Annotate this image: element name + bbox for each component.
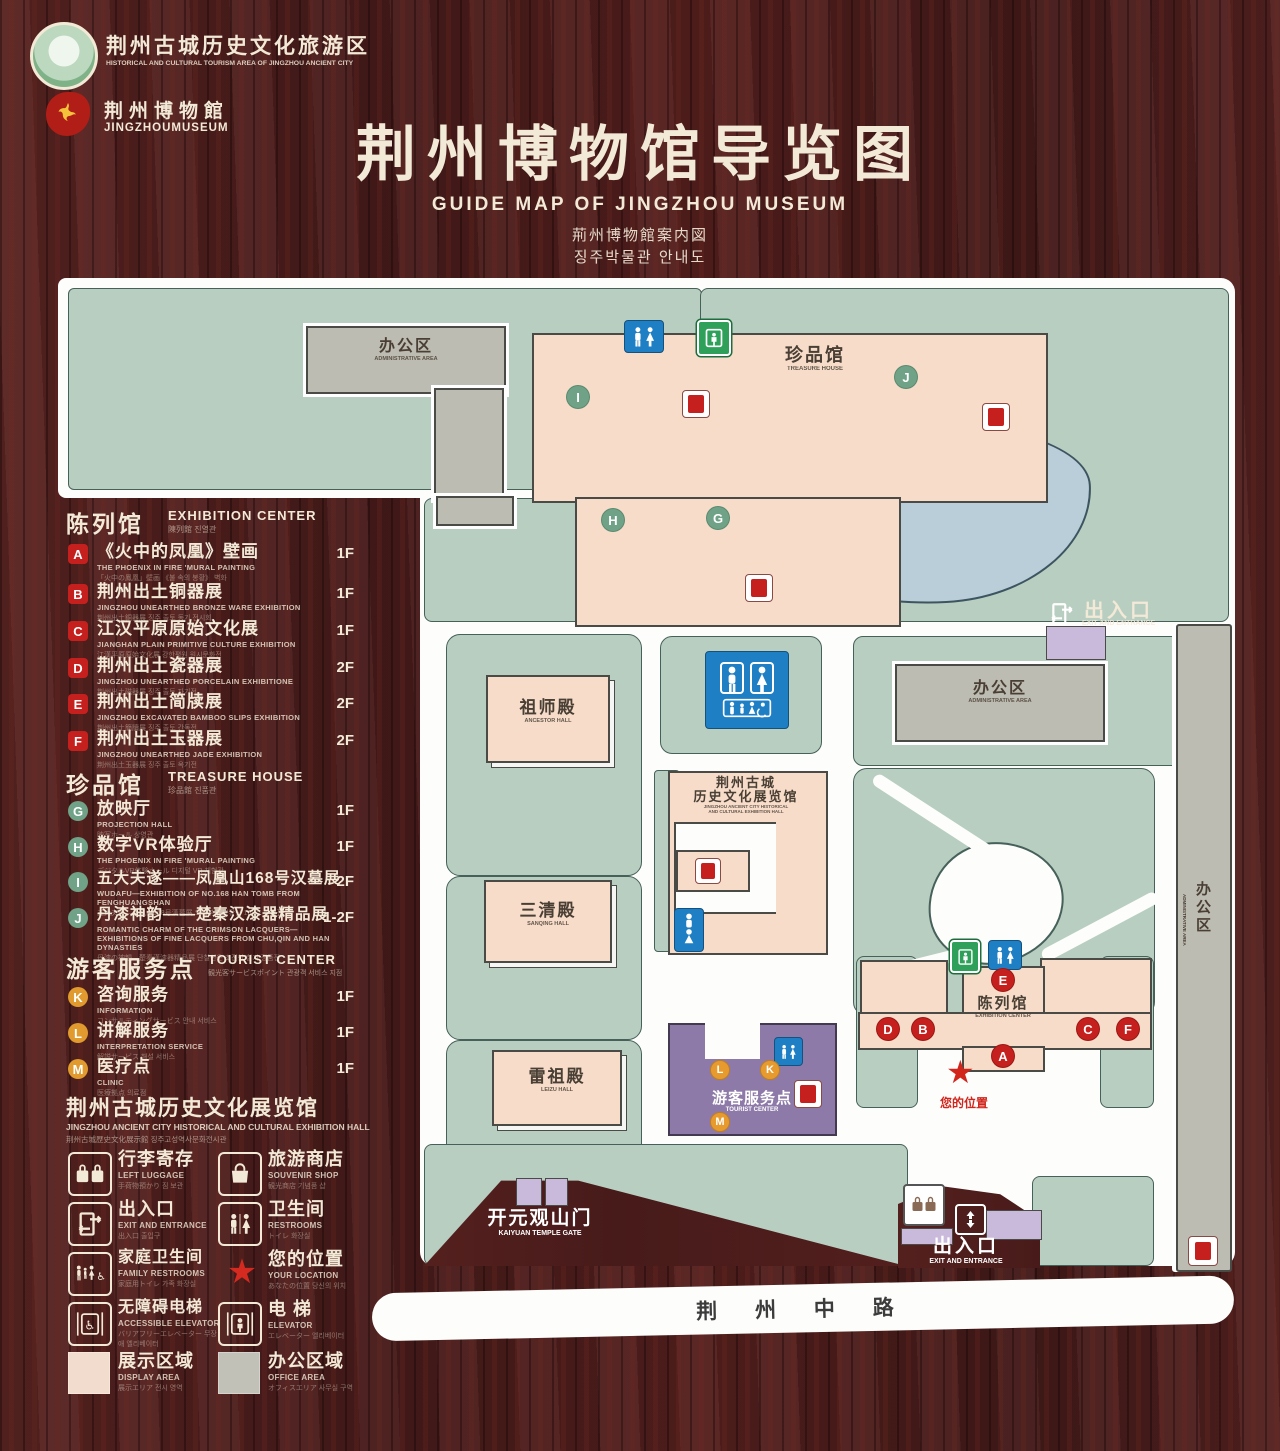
map-marker: K: [761, 1061, 779, 1079]
facility-entry: 电 梯 ELEVATOR エレベーター 엘리베이터: [268, 1300, 363, 1341]
item-floor: 2F: [336, 873, 354, 890]
history-hall-label-en2: AND CULTURAL EXHIBITION HALL: [670, 810, 822, 815]
treasure-house-label-en: TREASURE HOUSE: [760, 366, 870, 373]
ancestor-hall-label-en: ANCESTOR HALL: [488, 718, 608, 724]
hall-note-en: JINGZHOU ANCIENT CITY HISTORICAL AND CUL…: [66, 1122, 370, 1132]
admin-left-wing: [434, 388, 504, 500]
facility-entry: 卫生间 RESTROOMS トイレ 화장실: [268, 1200, 363, 1241]
marker-letter: M: [715, 1116, 724, 1128]
gate-label-en: KAIYUAN TEMPLE GATE: [455, 1230, 625, 1238]
ne-exit-label-cn: 出入口: [1084, 594, 1153, 623]
treasure-house-label-cn: 珍品馆: [760, 346, 870, 366]
legend-section-title: 游客服务点: [66, 950, 196, 984]
sanqing-hall-label-cn: 三清殿: [486, 902, 610, 921]
accessible-elevator-icon: ♿: [68, 1302, 112, 1346]
item-title: 荆州出土铜器展: [97, 583, 354, 601]
map-marker: I: [567, 386, 589, 408]
facility-sub: あなたの位置 당신의 위치: [268, 1281, 363, 1291]
item-letter-badge: F: [68, 731, 88, 751]
item-title: 荆州出土简牍展: [97, 693, 354, 711]
item-floor: 2F: [336, 659, 354, 676]
marker-letter: H: [608, 513, 617, 528]
legend-item: F荆州出土玉器展JINGZHOU UNEARTHED JADE EXHIBITI…: [68, 730, 354, 770]
leizu-hall-label-en: LEIZU HALL: [494, 1087, 620, 1093]
legend-item: L讲解服务INTERPRETATION SERVICE解説サービス 해설 서비스…: [68, 1022, 354, 1062]
elevator-icon: [218, 1302, 262, 1346]
gate-pillar: [516, 1178, 542, 1206]
facility-sub: バリアフリーエレベーター 무장애 엘리베이터: [118, 1329, 223, 1349]
map-marker: B: [912, 1018, 934, 1040]
tourism-logo-subtitle: HISTORICAL AND CULTURAL TOURISM AREA OF …: [106, 60, 396, 67]
admin-right-building: 办公区 ADMINISTRATIVE AREA: [895, 664, 1105, 742]
item-floor: 2F: [336, 732, 354, 749]
item-en: JINGZHOU UNEARTHED BRONZE WARE EXHIBITIO…: [97, 603, 354, 612]
item-letter-badge: D: [68, 658, 88, 678]
item-en: JINGZHOU EXCAVATED BAMBOO SLIPS EXHIBITI…: [97, 713, 354, 722]
item-title: 数字VR体验厅: [97, 836, 354, 854]
your-location-star-icon: ★: [946, 1056, 975, 1088]
exit-door-icon: [68, 1202, 112, 1246]
exhibition-center-building: [1040, 958, 1152, 1018]
admin-right-label-cn: 办公区: [897, 680, 1103, 698]
entrance-building: [1046, 626, 1106, 660]
page-title-ja: 荊州博物館案内図: [250, 224, 1030, 245]
item-letter-badge: L: [68, 1023, 88, 1043]
facility-entry: 出入口 EXIT AND ENTRANCE 出入口 출입구: [118, 1200, 213, 1241]
admin-left-label: 办公区 ADMINISTRATIVE AREA: [308, 338, 504, 362]
facility-en: RESTROOMS: [268, 1221, 363, 1230]
elevator-red-icon: [682, 390, 710, 418]
area-en: DISPLAY AREA: [118, 1373, 213, 1382]
elevator-red-icon: [794, 1080, 822, 1108]
museum-guide-poster: 荆州古城历史文化旅游区 HISTORICAL AND CULTURAL TOUR…: [0, 0, 1280, 1451]
elevator-red-icon: [745, 574, 773, 602]
elevator-red-icon: [695, 858, 721, 884]
exhibition-center-label-cn: 陈列馆: [958, 996, 1048, 1013]
elevator-red-icon: [1188, 1236, 1218, 1266]
item-en: JINGZHOU UNEARTHED JADE EXHIBITION: [97, 750, 354, 759]
facility-entry: 旅游商店 SOUVENIR SHOP 観光商店 기념품 샵: [268, 1150, 363, 1191]
elevator-red-icon: [982, 403, 1010, 431]
marker-letter: E: [999, 973, 1008, 988]
facility-sub: 観光商店 기념품 샵: [268, 1181, 363, 1191]
hall-note-sub: 荆州古城歴史文化展示館 징주고성역사문화전시관: [66, 1134, 226, 1145]
legend-section-title: 陈列馆: [66, 505, 144, 539]
leizu-hall-building: 雷祖殿 LEIZU HALL: [492, 1050, 622, 1126]
facility-en: ACCESSIBLE ELEVATOR: [118, 1319, 223, 1328]
legend-item: A《火中的凤凰》壁画THE PHOENIX IN FIRE 'MURAL PAI…: [68, 543, 354, 583]
item-en: PROJECTION HALL: [97, 820, 354, 829]
restroom-family-block: [705, 651, 789, 729]
header: 荆州古城历史文化旅游区 HISTORICAL AND CULTURAL TOUR…: [0, 0, 1280, 278]
item-letter-badge: M: [68, 1059, 88, 1079]
hall-note-title: 荆州古城历史文化展览馆: [66, 1092, 319, 1122]
area-entry: 展示区域 DISPLAY AREA 展示エリア 전시 영역: [118, 1352, 213, 1393]
item-title: 咨询服务: [97, 986, 354, 1004]
marker-letter: I: [576, 390, 580, 405]
item-title: 《火中的凤凰》壁画: [97, 543, 354, 561]
svg-text:♿: ♿: [84, 1318, 95, 1332]
map-marker: M: [711, 1113, 729, 1131]
legend-section-title-en: TREASURE HOUSE: [168, 769, 303, 784]
office-strip-building: 办公区 ADMINISTRATIVE AREA: [1176, 624, 1232, 1272]
facility-sub: エレベーター 엘리베이터: [268, 1331, 363, 1341]
lawn-block: [1032, 1176, 1154, 1266]
office-strip-label-en: ADMINISTRATIVE AREA: [1182, 894, 1187, 946]
shop-bag-icon: [218, 1152, 262, 1196]
item-letter-badge: I: [68, 872, 88, 892]
road-label: 荆 州 中 路: [696, 1291, 910, 1325]
updown-arrows-icon: [955, 1204, 986, 1235]
map-marker: A: [992, 1045, 1014, 1067]
exit-door-map-icon: [1048, 600, 1075, 627]
office-area-swatch: [218, 1352, 260, 1394]
item-title: 江汉平原原始文化展: [97, 620, 354, 638]
map-marker: E: [992, 969, 1014, 991]
legend-section-title-en: EXHIBITION CENTER: [168, 508, 316, 523]
exhibition-center-label: 陈列馆 EXHIBITION CENTER: [958, 996, 1048, 1019]
legend-section-title-en: TOURIST CENTER: [208, 952, 336, 967]
facility-entry: 行李寄存 LEFT LUGGAGE 手荷物預かり 짐 보관: [118, 1150, 213, 1191]
restroom-icon: [774, 1037, 803, 1066]
leizu-hall-label-cn: 雷祖殿: [494, 1068, 620, 1087]
history-hall-label: 荆州古城 历史文化展览馆 JINGZHOU ANCIENT CITY HISTO…: [670, 776, 822, 814]
item-letter-badge: B: [68, 584, 88, 604]
map-marker: G: [707, 507, 729, 529]
restroom-icon: [624, 320, 664, 353]
facility-entry: 家庭卫生间 FAMILY RESTROOMS 家庭用トイレ 가족 화장실: [118, 1250, 218, 1289]
facility-cn: 家庭卫生间: [118, 1250, 218, 1267]
restroom-icon: [674, 908, 704, 952]
admin-left-label-cn: 办公区: [308, 338, 504, 356]
ne-exit-label-en: EXIT AND ENTRANCE: [1082, 620, 1155, 627]
page-title: 荆州博物馆导览图: [250, 106, 1030, 193]
item-en: INFORMATION: [97, 1006, 354, 1015]
item-floor: 1F: [336, 545, 354, 562]
marker-letter: B: [918, 1022, 927, 1037]
sanqing-hall-building: 三清殿 SANQING HALL: [484, 880, 612, 963]
location-star-icon: ★: [222, 1252, 262, 1292]
your-location-label: 您的位置: [928, 1094, 1000, 1111]
museum-logo-title: 荆州博物館: [104, 96, 229, 123]
ancestor-hall-label-cn: 祖师殿: [488, 699, 608, 718]
facility-sub: 出入口 출입구: [118, 1231, 213, 1241]
facility-cn: 旅游商店: [268, 1150, 363, 1169]
item-letter-badge: H: [68, 837, 88, 857]
museum-logo-icon: [46, 92, 90, 136]
marker-letter: L: [717, 1064, 724, 1076]
facility-cn: 您的位置: [268, 1250, 363, 1269]
legend-item: G放映厅PROJECTION HALL映写ホール 상영관1F: [68, 800, 354, 840]
legend-item: C江汉平原原始文化展JIANGHAN PLAIN PRIMITIVE CULTU…: [68, 620, 354, 660]
area-cn: 办公区域: [268, 1352, 363, 1371]
map-marker: L: [711, 1061, 729, 1079]
legend-item: E荆州出土简牍展JINGZHOU EXCAVATED BAMBOO SLIPS …: [68, 693, 354, 733]
map-marker: J: [895, 366, 917, 388]
display-area-swatch: [68, 1352, 110, 1394]
office-strip-label-cn: 办公区: [1192, 881, 1213, 935]
phoenix-glyph: [55, 101, 81, 127]
exhibition-center-label-en: EXHIBITION CENTER: [958, 1013, 1048, 1019]
restroom-icon: [719, 661, 775, 695]
family-restroom-icon: ♿: [68, 1252, 112, 1296]
item-en: THE PHOENIX IN FIRE 'MURAL PAINTING: [97, 856, 354, 865]
family-restroom-icon: [722, 697, 772, 719]
legend-section-title-sub: 珍品館 진품관: [168, 785, 216, 796]
legend-item: K咨询服务INFORMATIONコンサルティングサービス 안내 서비스1F: [68, 986, 354, 1026]
museum-logo-subtitle: JINGZHOUMUSEUM: [104, 122, 229, 134]
facility-cn: 电 梯: [268, 1300, 363, 1319]
facility-cn: 出入口: [118, 1200, 213, 1219]
marker-letter: C: [1083, 1022, 1092, 1037]
south-exit-label: 出入口 EXIT AND ENTRANCE: [900, 1236, 1032, 1266]
ancestor-hall-building: 祖师殿 ANCESTOR HALL: [486, 675, 610, 763]
emergency-exit-icon: [950, 940, 980, 973]
item-title: 讲解服务: [97, 1022, 354, 1040]
map-marker: C: [1077, 1018, 1099, 1040]
admin-left-label-en: ADMINISTRATIVE AREA: [308, 356, 504, 362]
item-en: ROMANTIC CHARM OF THE CRIMSON LACQUERS— …: [97, 925, 347, 952]
map-marker: D: [877, 1018, 899, 1040]
south-exit-label-cn: 出入口: [900, 1236, 1032, 1258]
treasure-house-label: 珍品馆 TREASURE HOUSE: [760, 346, 870, 372]
legend-item: B荆州出土铜器展JINGZHOU UNEARTHED BRONZE WARE E…: [68, 583, 354, 623]
item-title: 荆州出土玉器展: [97, 730, 354, 748]
facility-sub: 家庭用トイレ 가족 화장실: [118, 1279, 218, 1289]
facility-cn: 卫生间: [268, 1200, 363, 1219]
item-floor: 1F: [336, 585, 354, 602]
tourist-center-notch: [705, 1021, 760, 1059]
item-floor: 1F: [336, 988, 354, 1005]
restroom-legend-icon: [218, 1202, 262, 1246]
area-cn: 展示区域: [118, 1352, 213, 1371]
item-floor: 2F: [336, 695, 354, 712]
luggage-icon: [68, 1152, 112, 1196]
page-title-ko: 징주박물관 안내도: [250, 246, 1030, 267]
facility-en: SOUVENIR SHOP: [268, 1171, 363, 1180]
svg-text:♿: ♿: [96, 1271, 106, 1283]
map-marker: H: [602, 509, 624, 531]
item-letter-badge: A: [68, 544, 88, 564]
facility-en: ELEVATOR: [268, 1321, 363, 1330]
area-sub: 展示エリア 전시 영역: [118, 1383, 213, 1393]
legend-section-title-sub: 陳列館 진열관: [168, 524, 216, 535]
item-letter-badge: C: [68, 621, 88, 641]
marker-letter: D: [883, 1022, 892, 1037]
item-floor: 1F: [336, 1060, 354, 1077]
gate-pillar: [545, 1178, 568, 1206]
road-band: 荆 州 中 路: [372, 1275, 1235, 1341]
sanqing-hall-label-en: SANQING HALL: [486, 921, 610, 927]
item-letter-badge: J: [68, 908, 88, 928]
page-title-en: GUIDE MAP OF JINGZHOU MUSEUM: [250, 194, 1030, 216]
south-exit-label-en: EXIT AND ENTRANCE: [900, 1258, 1032, 1266]
item-en: CLINIC: [97, 1078, 354, 1087]
exhibition-center-building: [860, 960, 948, 1018]
item-title: 荆州出土瓷器展: [97, 657, 354, 675]
tourism-logo-icon: [30, 22, 98, 90]
item-title: 医疗点: [97, 1058, 354, 1076]
marker-letter: J: [902, 370, 909, 385]
item-en: WUDAFU—EXHIBITION OF NO.168 HAN TOMB FRO…: [97, 889, 354, 907]
restroom-icon: [988, 940, 1022, 970]
facility-cn: 行李寄存: [118, 1150, 213, 1169]
marker-letter: F: [1124, 1022, 1132, 1037]
item-letter-badge: G: [68, 801, 88, 821]
item-floor: 1F: [336, 802, 354, 819]
marker-letter: K: [766, 1064, 774, 1076]
emergency-exit-icon: [697, 320, 731, 356]
item-title: 放映厅: [97, 800, 354, 818]
item-floor: 1-2F: [323, 909, 354, 926]
item-floor: 1F: [336, 838, 354, 855]
legend-section-title-sub: 観光客サービスポイント 관광객 서비스 지점: [208, 968, 342, 978]
facility-en: EXIT AND ENTRANCE: [118, 1221, 213, 1230]
treasure-house-building-lower: [575, 497, 901, 627]
item-floor: 1F: [336, 1024, 354, 1041]
tourism-logo-title: 荆州古城历史文化旅游区: [106, 30, 370, 60]
history-hall-label-cn2: 历史文化展览馆: [670, 790, 822, 804]
area-en: OFFICE AREA: [268, 1373, 363, 1382]
area-sub: オフィスエリア 사무실 구역: [268, 1383, 363, 1393]
facility-entry: 您的位置 YOUR LOCATION あなたの位置 당신의 위치: [268, 1250, 363, 1291]
admin-left-wing-foot: [436, 496, 514, 526]
facility-cn: 无障碍电梯: [118, 1300, 223, 1317]
item-en: THE PHOENIX IN FIRE 'MURAL PAINTING: [97, 563, 354, 572]
area-entry: 办公区域 OFFICE AREA オフィスエリア 사무실 구역: [268, 1352, 363, 1393]
map-marker: F: [1117, 1018, 1139, 1040]
facility-en: YOUR LOCATION: [268, 1271, 363, 1280]
history-hall-label-cn1: 荆州古城: [670, 776, 822, 790]
tourist-center-label-en: TOURIST CENTER: [693, 1107, 811, 1114]
admin-left-building: 办公区 ADMINISTRATIVE AREA: [306, 326, 506, 394]
facility-en: LEFT LUGGAGE: [118, 1171, 213, 1180]
legend-section-title: 珍品馆: [66, 766, 144, 800]
gate-label: 开元观山门 KAIYUAN TEMPLE GATE: [455, 1208, 625, 1238]
item-en: JIANGHAN PLAIN PRIMITIVE CULTURE EXHIBIT…: [97, 640, 354, 649]
facility-entry: 无障碍电梯 ACCESSIBLE ELEVATOR バリアフリーエレベーター 무…: [118, 1300, 223, 1349]
item-letter-badge: K: [68, 987, 88, 1007]
facility-sub: トイレ 화장실: [268, 1231, 363, 1241]
facility-en: FAMILY RESTROOMS: [118, 1269, 218, 1278]
marker-letter: G: [713, 511, 723, 526]
item-title: 丹漆神韵——楚秦汉漆器精品展: [97, 907, 354, 923]
item-letter-badge: E: [68, 694, 88, 714]
gate-label-cn: 开元观山门: [455, 1208, 625, 1230]
facility-sub: 手荷物預かり 짐 보관: [118, 1181, 213, 1191]
item-en: INTERPRETATION SERVICE: [97, 1042, 354, 1051]
item-floor: 1F: [336, 622, 354, 639]
left-luggage-map-icon: [903, 1184, 945, 1226]
legend-item: D荆州出土瓷器展JINGZHOU UNEARTHED PORCELAIN EXH…: [68, 657, 354, 697]
admin-right-label-en: ADMINISTRATIVE AREA: [897, 698, 1103, 704]
marker-letter: A: [998, 1049, 1007, 1064]
item-en: JINGZHOU UNEARTHED PORCELAIN EXHIBITIONE: [97, 677, 354, 686]
item-title: 五大夫遂——凤凰山168号汉墓展: [97, 871, 354, 887]
